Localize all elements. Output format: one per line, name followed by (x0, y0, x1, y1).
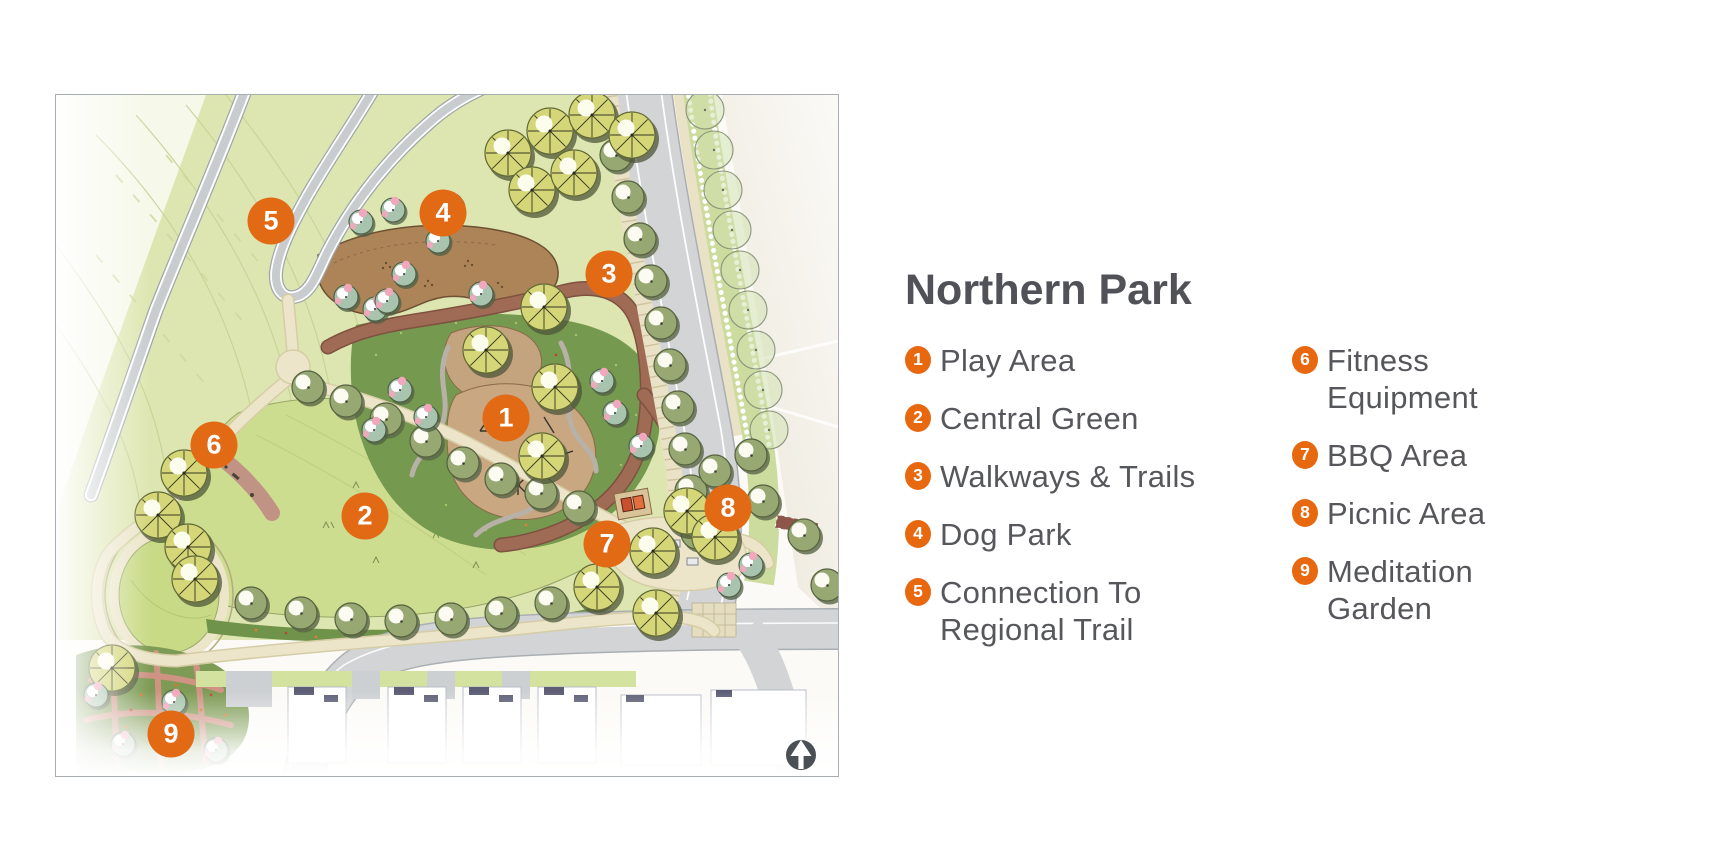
legend-item-bullet: 1 (905, 346, 931, 374)
map-panel: 1 2 3 4 5 6 7 8 9 (55, 94, 839, 777)
legend-item-picnic-area: 8 Picnic Area (1292, 495, 1525, 532)
marker-number: 6 (206, 432, 221, 459)
marker-number: 2 (357, 503, 372, 530)
map-marker-5: 5 (248, 198, 295, 245)
map-marker-3: 3 (586, 251, 633, 298)
legend-item-bullet: 5 (905, 578, 931, 606)
map-marker-2: 2 (342, 493, 389, 540)
marker-number: 3 (601, 261, 616, 288)
legend-item-label: Picnic Area (1327, 495, 1485, 532)
legend-item-bullet: 9 (1292, 557, 1318, 585)
legend-item-label: Central Green (940, 400, 1139, 437)
map-marker-9: 9 (148, 711, 195, 758)
legend-item-bullet: 3 (905, 462, 931, 490)
legend-title: Northern Park (905, 267, 1525, 314)
legend-item-label: Fitness Equipment (1327, 342, 1525, 416)
map-marker-8: 8 (705, 485, 752, 532)
north-arrow-icon (786, 740, 816, 770)
map-marker-1: 1 (483, 395, 530, 442)
legend-item-connection-regional-trail: 5 Connection To Regional Trail (905, 574, 1292, 648)
legend-item-label: Connection To Regional Trail (940, 574, 1142, 648)
bbq-pad (614, 488, 652, 520)
marker-number: 8 (720, 495, 735, 522)
legend-item-meditation-garden: 9 Meditation Garden (1292, 553, 1525, 627)
legend-item-label: Dog Park (940, 516, 1072, 553)
marker-number: 1 (498, 405, 513, 432)
marker-number: 9 (163, 721, 178, 748)
marker-number: 7 (599, 531, 614, 558)
legend: Northern Park 1 Play Area 2 Central Gree… (905, 267, 1525, 669)
map-marker-7: 7 (584, 521, 631, 568)
legend-item-dog-park: 4 Dog Park (905, 516, 1292, 553)
legend-item-bbq-area: 7 BBQ Area (1292, 437, 1525, 474)
legend-item-label: Meditation Garden (1327, 553, 1525, 627)
legend-item-bullet: 4 (905, 520, 931, 548)
legend-item-fitness-equipment: 6 Fitness Equipment (1292, 342, 1525, 416)
legend-item-label: Play Area (940, 342, 1075, 379)
legend-item-bullet: 2 (905, 404, 931, 432)
legend-item-label: Walkways & Trails (940, 458, 1195, 495)
legend-column-2: 6 Fitness Equipment 7 BBQ Area 8 Picnic … (1292, 342, 1525, 669)
legend-columns: 1 Play Area 2 Central Green 3 Walkways &… (905, 342, 1525, 669)
map-marker-4: 4 (420, 190, 467, 237)
map-marker-6: 6 (191, 422, 238, 469)
legend-item-central-green: 2 Central Green (905, 400, 1292, 437)
legend-item-play-area: 1 Play Area (905, 342, 1292, 379)
legend-item-label: BBQ Area (1327, 437, 1467, 474)
legend-item-bullet: 7 (1292, 441, 1318, 469)
legend-item-bullet: 6 (1292, 346, 1318, 374)
marker-number: 4 (435, 200, 450, 227)
legend-column-1: 1 Play Area 2 Central Green 3 Walkways &… (905, 342, 1292, 669)
legend-item-walkways-trails: 3 Walkways & Trails (905, 458, 1292, 495)
marker-number: 5 (263, 208, 278, 235)
legend-item-bullet: 8 (1292, 499, 1318, 527)
page: 1 2 3 4 5 6 7 8 9 Northern Park 1 Play A… (0, 0, 1733, 867)
